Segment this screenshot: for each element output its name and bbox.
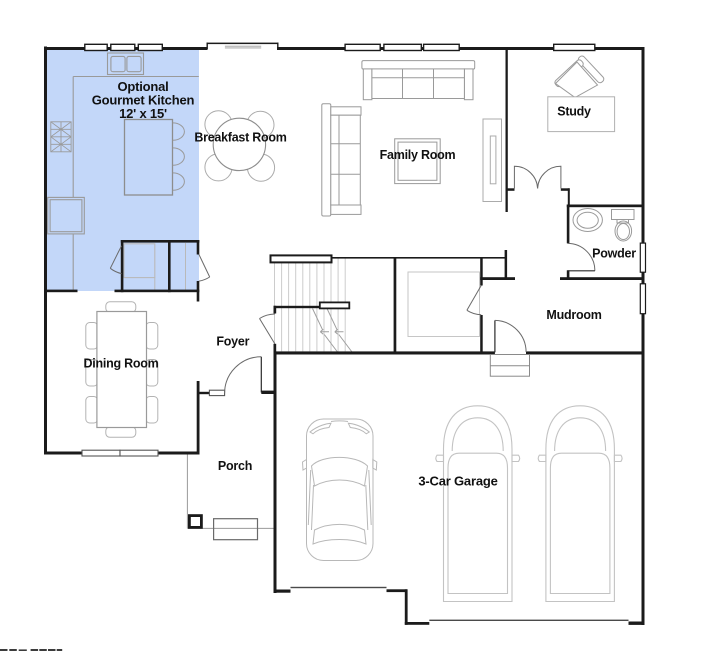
svg-text:Family Room: Family Room (380, 148, 456, 162)
svg-text:Dining Room: Dining Room (83, 357, 158, 371)
svg-text:Breakfast Room: Breakfast Room (194, 131, 286, 145)
svg-text:Powder: Powder (592, 247, 636, 261)
svg-text:Mudroom: Mudroom (546, 308, 601, 322)
svg-text:3-Car Garage: 3-Car Garage (418, 474, 497, 489)
svg-text:Study: Study (557, 105, 591, 119)
svg-text:Foyer: Foyer (216, 335, 249, 349)
svg-text:12' x 15': 12' x 15' (119, 106, 167, 121)
svg-text:Porch: Porch (218, 459, 252, 473)
